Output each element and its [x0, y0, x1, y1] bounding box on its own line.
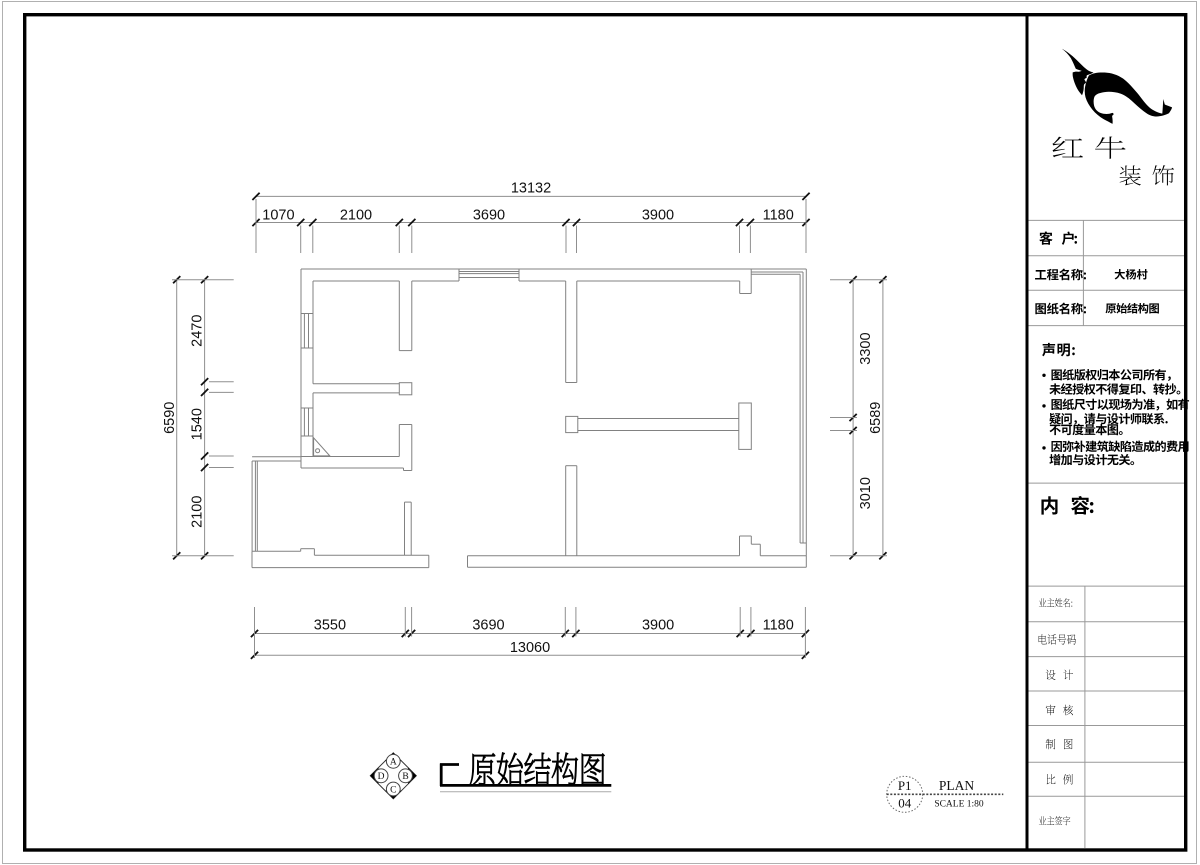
- svg-text:1180: 1180: [763, 618, 794, 634]
- svg-text:P1: P1: [898, 778, 912, 793]
- svg-text:1070: 1070: [262, 208, 294, 224]
- svg-text:C: C: [390, 785, 396, 795]
- svg-text:3690: 3690: [472, 618, 504, 634]
- svg-text:13060: 13060: [510, 640, 550, 656]
- svg-text:04: 04: [898, 796, 912, 811]
- svg-text:2100: 2100: [190, 496, 206, 528]
- svg-text:3900: 3900: [642, 618, 674, 634]
- svg-text:A: A: [390, 758, 397, 768]
- svg-text:6589: 6589: [868, 402, 884, 434]
- svg-text:PLAN: PLAN: [939, 778, 975, 793]
- svg-text:3690: 3690: [473, 208, 505, 224]
- svg-text:13132: 13132: [511, 181, 551, 197]
- svg-text:SCALE 1:80: SCALE 1:80: [934, 800, 984, 810]
- svg-text:3010: 3010: [858, 477, 874, 509]
- svg-text:D: D: [378, 772, 385, 782]
- svg-text:3900: 3900: [642, 208, 674, 224]
- svg-text:2100: 2100: [340, 208, 372, 224]
- svg-text:1180: 1180: [763, 208, 794, 224]
- svg-text:3300: 3300: [858, 332, 874, 364]
- svg-text:2470: 2470: [190, 315, 206, 347]
- svg-text:B: B: [402, 772, 408, 782]
- svg-text:3550: 3550: [314, 618, 346, 634]
- svg-text:6590: 6590: [162, 402, 178, 434]
- svg-text:1540: 1540: [190, 408, 206, 440]
